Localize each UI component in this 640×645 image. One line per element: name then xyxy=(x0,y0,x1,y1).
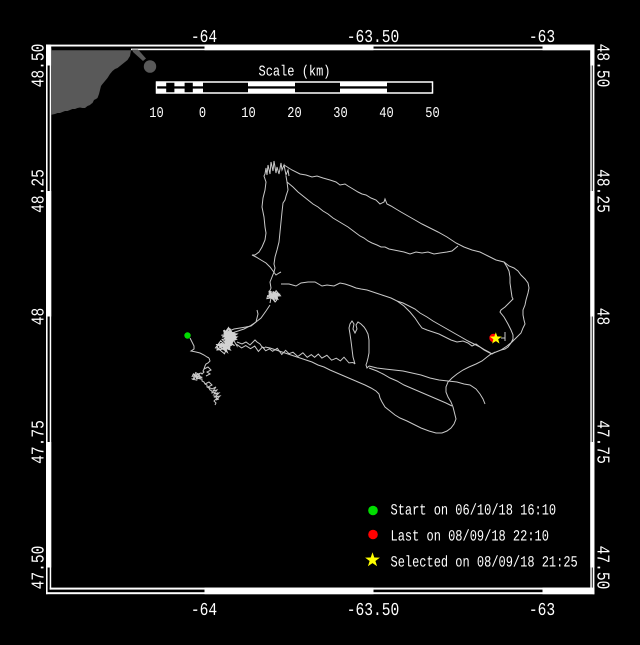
svg-text:Scale (km): Scale (km) xyxy=(258,63,330,80)
svg-text:0: 0 xyxy=(199,105,206,122)
svg-text:30: 30 xyxy=(333,105,347,122)
svg-text:10: 10 xyxy=(149,105,163,122)
svg-text:48: 48 xyxy=(30,308,50,326)
svg-text:-63.50: -63.50 xyxy=(347,601,400,621)
svg-text:-64: -64 xyxy=(191,601,218,621)
svg-text:Selected on 08/09/18 21:25: Selected on 08/09/18 21:25 xyxy=(391,554,578,572)
svg-text:Last on 08/09/18 22:10: Last on 08/09/18 22:10 xyxy=(391,528,549,546)
svg-text:48.50: 48.50 xyxy=(591,44,611,88)
svg-text:48: 48 xyxy=(591,308,611,326)
svg-text:-63: -63 xyxy=(529,601,555,621)
svg-text:-63: -63 xyxy=(529,28,555,48)
svg-text:48.25: 48.25 xyxy=(30,169,50,213)
svg-text:47.75: 47.75 xyxy=(30,420,50,464)
svg-text:40: 40 xyxy=(379,105,393,122)
svg-text:-64: -64 xyxy=(191,28,218,48)
svg-text:47.50: 47.50 xyxy=(591,546,611,590)
svg-text:-63.50: -63.50 xyxy=(347,28,400,48)
svg-text:47.75: 47.75 xyxy=(591,420,611,464)
svg-text:47.50: 47.50 xyxy=(30,546,50,590)
svg-text:48.50: 48.50 xyxy=(30,44,50,88)
svg-text:20: 20 xyxy=(287,105,301,122)
svg-text:10: 10 xyxy=(241,105,255,122)
svg-text:48.25: 48.25 xyxy=(591,169,611,213)
svg-text:50: 50 xyxy=(425,105,439,122)
svg-text:Start on 06/10/18 16:10: Start on 06/10/18 16:10 xyxy=(391,502,557,520)
